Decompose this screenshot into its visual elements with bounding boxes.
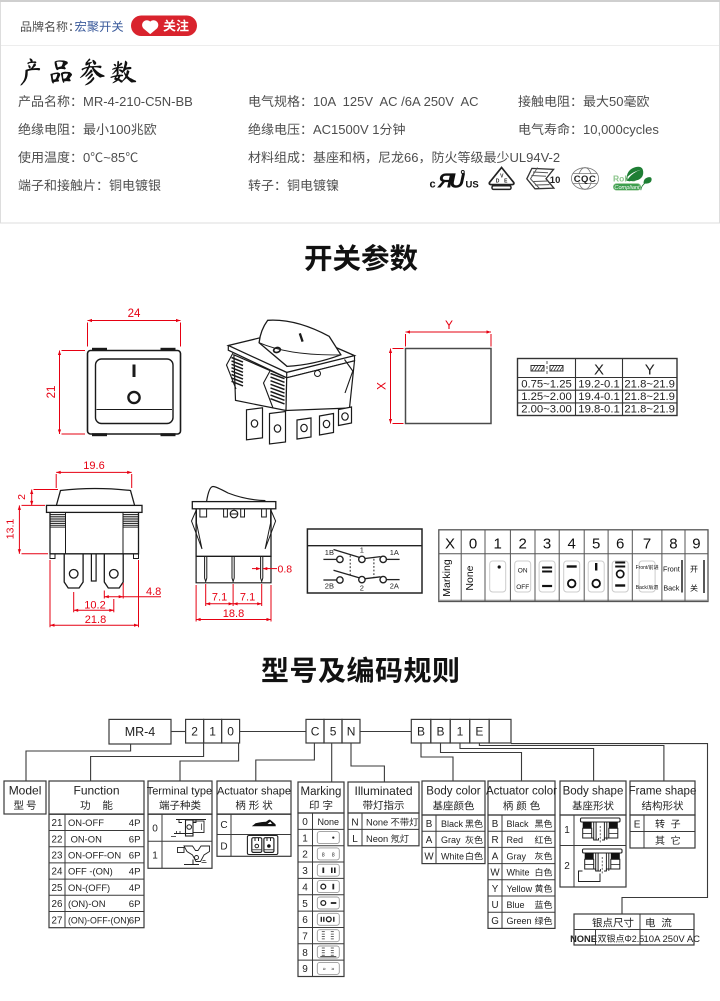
svg-text:~85: ~85: [103, 150, 125, 165]
svg-text:13.1: 13.1: [5, 519, 17, 540]
svg-text:B: B: [417, 725, 425, 739]
svg-text:21.8~21.9: 21.8~21.9: [624, 378, 675, 390]
svg-text:2: 2: [302, 850, 308, 861]
svg-text:Marking: Marking: [441, 559, 453, 597]
svg-text:21: 21: [46, 386, 58, 399]
svg-text:1A: 1A: [390, 548, 399, 557]
svg-text:White: White: [441, 851, 464, 861]
svg-text:X: X: [375, 382, 389, 390]
svg-text:R: R: [492, 835, 499, 846]
svg-text:0.75~1.25: 0.75~1.25: [521, 378, 572, 390]
svg-text:19.4-0.1: 19.4-0.1: [578, 391, 619, 403]
svg-text:Model: Model: [9, 784, 42, 798]
svg-text:ON-ON: ON-ON: [68, 833, 102, 844]
svg-text:0: 0: [152, 824, 158, 835]
svg-text:21.8~21.9: 21.8~21.9: [624, 391, 675, 403]
svg-text:21: 21: [52, 818, 63, 829]
svg-text:E: E: [475, 725, 483, 739]
svg-text:3: 3: [543, 536, 551, 553]
svg-text:ON-OFF: ON-OFF: [68, 817, 104, 828]
svg-text:C: C: [311, 725, 320, 739]
svg-text:Y: Y: [492, 884, 499, 895]
svg-text:OFF: OFF: [516, 584, 529, 591]
svg-text:Function: Function: [74, 784, 120, 798]
svg-text:8: 8: [669, 536, 677, 553]
svg-text:Back: Back: [663, 584, 679, 593]
svg-text:21.8~21.9: 21.8~21.9: [624, 404, 675, 416]
svg-text:10.2: 10.2: [84, 600, 105, 612]
svg-text:100: 100: [109, 122, 131, 137]
svg-text:4P: 4P: [129, 818, 141, 829]
svg-text:5: 5: [330, 725, 337, 739]
svg-text:24: 24: [52, 867, 63, 878]
svg-text:2.00~3.00: 2.00~3.00: [521, 404, 572, 416]
svg-text:Black: Black: [507, 819, 530, 829]
svg-text:6P: 6P: [129, 851, 141, 862]
svg-text:2: 2: [564, 861, 570, 872]
svg-text:7: 7: [302, 932, 308, 943]
svg-text:C: C: [220, 820, 227, 831]
svg-text:Illuminated: Illuminated: [355, 784, 413, 798]
svg-text:4P: 4P: [129, 867, 141, 878]
svg-text:X: X: [445, 536, 455, 553]
svg-text:18.8: 18.8: [223, 608, 244, 620]
svg-text:Compliant: Compliant: [614, 185, 640, 191]
svg-text:B: B: [492, 819, 499, 830]
svg-text:5: 5: [302, 899, 308, 910]
svg-text:7.1: 7.1: [240, 592, 255, 604]
svg-text:6P: 6P: [129, 915, 141, 926]
svg-text:Actuator shape: Actuator shape: [217, 786, 291, 798]
svg-text:2A: 2A: [390, 582, 399, 591]
svg-text:23: 23: [52, 851, 63, 862]
svg-text:Front: Front: [663, 565, 680, 574]
svg-text:0: 0: [302, 817, 308, 828]
svg-text:Y: Y: [645, 362, 655, 379]
svg-text:3: 3: [302, 866, 308, 877]
svg-text:10A 125V AC /6A 250V AC: 10A 125V AC /6A 250V AC: [313, 94, 479, 109]
svg-text:24: 24: [128, 308, 141, 320]
svg-text:ON-(OFF): ON-(OFF): [68, 882, 110, 893]
svg-text:2.5: 2.5: [632, 934, 645, 944]
svg-text:50: 50: [609, 94, 623, 109]
svg-text:(ON)-OFF-(ON): (ON)-OFF-(ON): [68, 915, 130, 925]
svg-text:19.2-0.1: 19.2-0.1: [578, 378, 619, 390]
svg-text:8: 8: [322, 852, 325, 858]
svg-text:G: G: [491, 916, 499, 927]
svg-text:0: 0: [469, 536, 477, 553]
svg-text:8: 8: [332, 852, 335, 858]
svg-text:N: N: [347, 725, 356, 739]
svg-text:Terminal type: Terminal type: [147, 786, 212, 798]
svg-text:MR-4-210-C5N-BB: MR-4-210-C5N-BB: [83, 94, 193, 109]
svg-text:9: 9: [302, 964, 308, 975]
svg-text:19.6: 19.6: [83, 460, 104, 472]
svg-text:0.8: 0.8: [278, 564, 293, 576]
svg-text:Red: Red: [507, 835, 524, 845]
svg-text:B: B: [426, 819, 433, 830]
svg-text:1: 1: [302, 833, 308, 844]
svg-text:Frame shape: Frame shape: [629, 786, 697, 798]
svg-text:2B: 2B: [325, 582, 334, 591]
svg-text:CQC: CQC: [574, 174, 597, 185]
svg-text:A: A: [426, 835, 433, 846]
svg-text:None: None: [366, 818, 388, 828]
svg-text:U: U: [492, 900, 499, 911]
svg-text:2: 2: [519, 536, 527, 553]
svg-text:5: 5: [592, 536, 600, 553]
svg-text:2: 2: [360, 584, 364, 593]
svg-text:E: E: [634, 820, 641, 831]
svg-text:1.25~2.00: 1.25~2.00: [521, 391, 572, 403]
svg-text:8: 8: [302, 948, 308, 959]
svg-text:6: 6: [616, 536, 624, 553]
svg-text:UL94V-2: UL94V-2: [510, 150, 561, 165]
svg-text:Actuator color: Actuator color: [486, 786, 557, 798]
svg-text:4.8: 4.8: [146, 586, 161, 598]
svg-text:Neon: Neon: [366, 834, 388, 844]
svg-text:9: 9: [692, 536, 700, 553]
svg-text:1: 1: [360, 545, 364, 554]
svg-text:c: c: [430, 179, 436, 191]
svg-text:7.1: 7.1: [212, 592, 227, 604]
svg-text:US: US: [466, 180, 479, 191]
svg-text:N: N: [351, 818, 358, 829]
svg-text:MR-4: MR-4: [125, 725, 156, 739]
svg-text:ON: ON: [518, 568, 528, 575]
svg-text:1: 1: [564, 825, 570, 836]
svg-text:Body color: Body color: [426, 786, 481, 798]
svg-text:OFF -(ON): OFF -(ON): [68, 866, 113, 877]
svg-text:0: 0: [83, 150, 90, 165]
svg-text:21.8: 21.8: [85, 614, 106, 626]
svg-text:2: 2: [16, 494, 28, 500]
svg-text:22: 22: [52, 834, 63, 845]
svg-text:X: X: [594, 362, 604, 379]
svg-text:7: 7: [643, 536, 651, 553]
svg-text:6P: 6P: [129, 834, 141, 845]
svg-text:2: 2: [191, 725, 198, 739]
svg-text:Back/: Back/: [636, 585, 649, 591]
svg-text:Front/: Front/: [636, 565, 650, 571]
svg-text:B: B: [437, 725, 445, 739]
svg-text:D: D: [496, 178, 500, 184]
svg-text:NONE: NONE: [570, 934, 597, 944]
svg-text:A: A: [492, 851, 499, 862]
svg-text:None: None: [318, 817, 340, 827]
svg-text:1B: 1B: [325, 548, 334, 557]
svg-text:Y: Y: [445, 318, 453, 332]
svg-text:White: White: [507, 868, 530, 878]
svg-text:Marking: Marking: [301, 786, 342, 798]
svg-text:1: 1: [494, 536, 502, 553]
svg-text:Black: Black: [441, 819, 464, 829]
svg-text:1: 1: [152, 851, 158, 862]
svg-text:6: 6: [302, 915, 308, 926]
svg-text:Body shape: Body shape: [563, 786, 624, 798]
svg-text:66: 66: [404, 150, 418, 165]
svg-text:»: »: [323, 966, 326, 972]
svg-text:L: L: [352, 834, 358, 845]
svg-text:10A 250V AC: 10A 250V AC: [644, 934, 701, 945]
svg-text:E: E: [504, 178, 508, 184]
svg-text:Yellow: Yellow: [507, 884, 533, 894]
svg-text:10,000cycles: 10,000cycles: [583, 122, 659, 137]
svg-text:4: 4: [568, 536, 576, 553]
svg-text:W: W: [424, 851, 434, 862]
svg-text:4P: 4P: [129, 883, 141, 894]
svg-text:25: 25: [52, 883, 63, 894]
svg-text:Blue: Blue: [507, 900, 525, 910]
svg-text:»: »: [331, 966, 334, 972]
svg-text:Gray: Gray: [507, 851, 527, 861]
svg-text:W: W: [490, 868, 500, 879]
svg-text:ON-OFF-ON: ON-OFF-ON: [68, 850, 121, 861]
svg-text:0: 0: [227, 725, 234, 739]
svg-text:1: 1: [209, 725, 216, 739]
svg-text:D: D: [220, 842, 227, 853]
svg-text:Green: Green: [507, 916, 532, 926]
svg-text:Gray: Gray: [441, 835, 461, 845]
svg-text:None: None: [464, 565, 476, 590]
svg-text:4: 4: [302, 882, 308, 893]
svg-text:6P: 6P: [129, 899, 141, 910]
svg-text:26: 26: [52, 899, 63, 910]
svg-text:1: 1: [457, 725, 464, 739]
svg-text:27: 27: [52, 915, 63, 926]
svg-text:10: 10: [550, 175, 561, 186]
svg-text:19.8-0.1: 19.8-0.1: [578, 404, 619, 416]
svg-text:(ON)-ON: (ON)-ON: [68, 898, 106, 909]
svg-text:AC1500V 1: AC1500V 1: [313, 122, 380, 137]
